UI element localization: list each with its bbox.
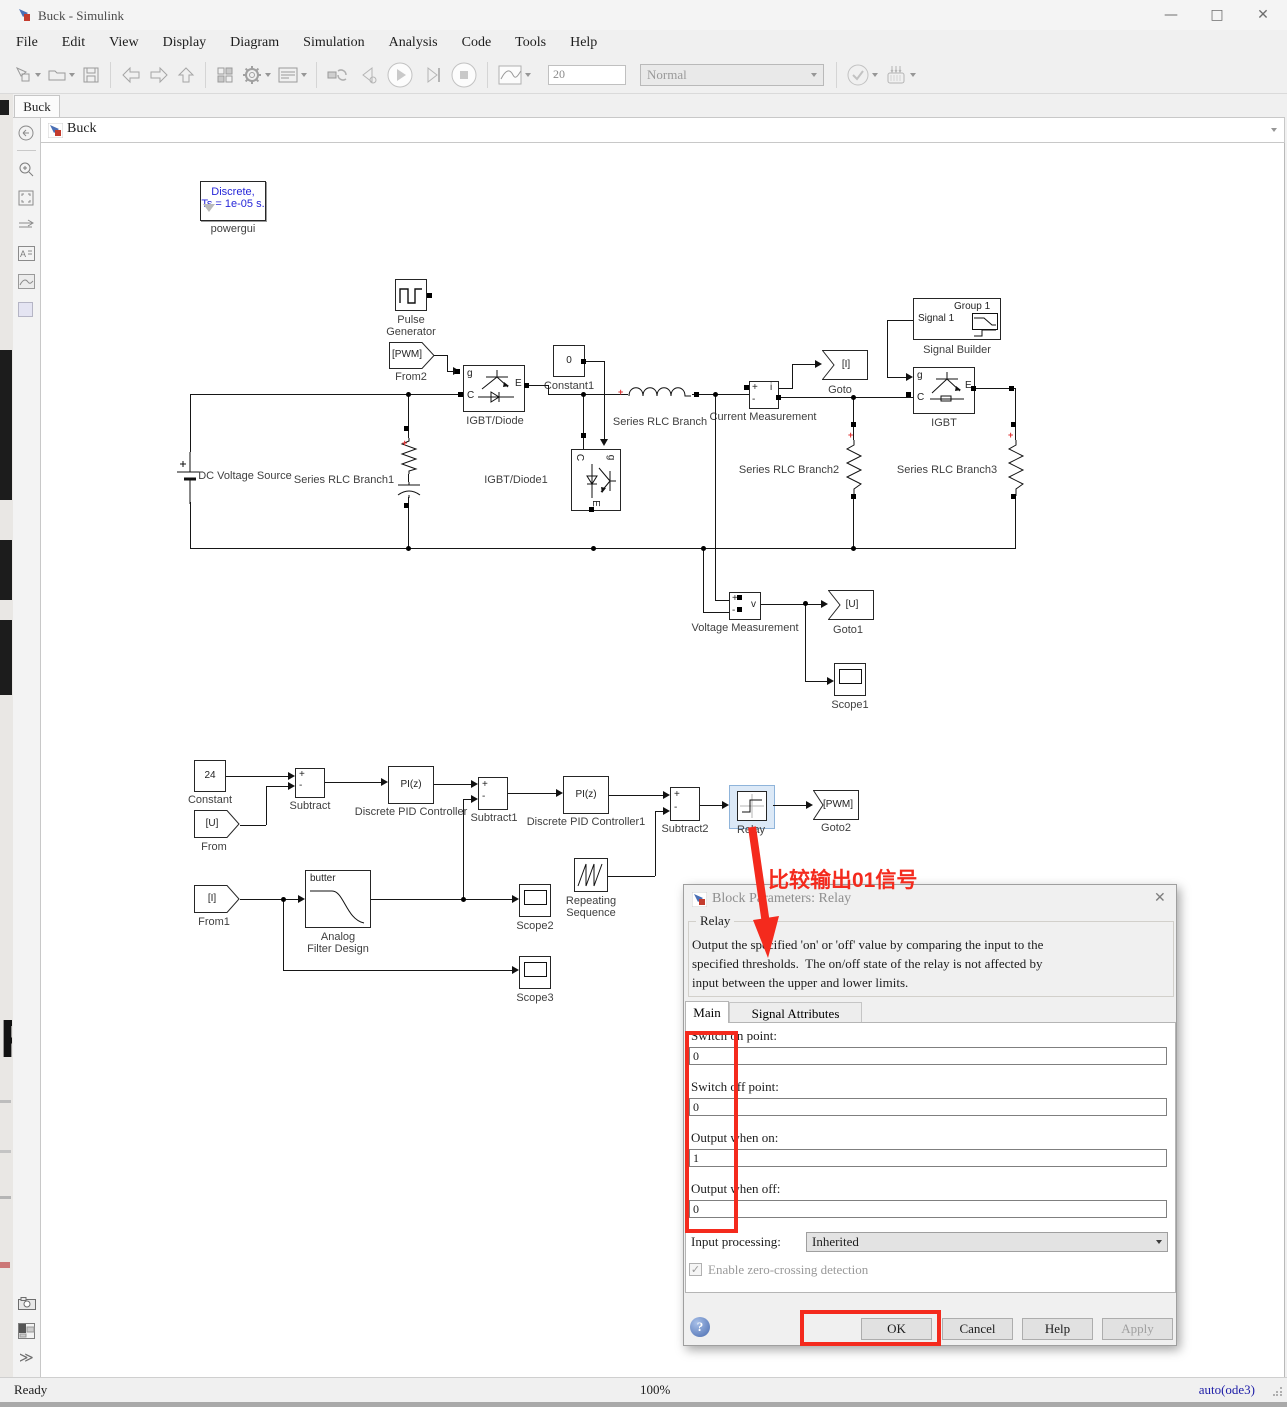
step-forward-button[interactable] (417, 61, 447, 89)
wire-arrow (815, 360, 822, 368)
block-label: Discrete PID Controller (355, 806, 467, 818)
block-signal-builder[interactable]: Signal 1 Group 1 (913, 298, 1001, 340)
wire-arrow (806, 801, 813, 809)
menu-code[interactable]: Code (462, 35, 492, 51)
block-scope2[interactable] (519, 884, 551, 917)
chevron-down-icon[interactable] (301, 73, 307, 77)
block-goto[interactable]: [I] (822, 350, 868, 380)
signal-routing-icon[interactable] (18, 219, 35, 236)
switch-off-input[interactable] (689, 1098, 1167, 1116)
port (776, 395, 781, 400)
port (458, 392, 463, 397)
simulink-logo-icon (48, 123, 63, 138)
port (427, 293, 432, 298)
block-analog-filter[interactable]: butter (305, 870, 371, 928)
block-label: Series RLC Branch1 (294, 474, 394, 486)
wire (548, 385, 549, 394)
wire-arrow (288, 782, 295, 790)
block-label: Constant1 (544, 380, 594, 392)
wire-arrow (298, 895, 305, 903)
tab-main[interactable]: Main (685, 1001, 729, 1023)
block-voltage-measurement[interactable]: + v - (729, 592, 761, 620)
wire (609, 795, 663, 796)
open-folder-icon (47, 65, 67, 85)
zero-crossing-checkbox[interactable]: ✓ (689, 1263, 702, 1276)
background-fragment (0, 1196, 11, 1199)
polarity-plus: + (848, 430, 853, 440)
simulation-mode-dropdown[interactable]: Normal (640, 64, 824, 86)
toolbar-separator (205, 62, 206, 88)
menu-diagram[interactable]: Diagram (230, 35, 279, 51)
block-label: Sequence (566, 907, 616, 919)
wire (1015, 388, 1016, 440)
block-label: Generator (386, 326, 436, 338)
port (1009, 386, 1014, 391)
wire (1015, 496, 1016, 548)
wire (190, 502, 191, 548)
menu-bar: File Edit View Display Diagram Simulatio… (0, 30, 1287, 56)
block-discrete-pid1[interactable]: PI(z) (563, 776, 609, 814)
block-from1[interactable]: [I] (194, 885, 240, 913)
block-label: Signal Builder (923, 344, 991, 356)
menu-file[interactable]: File (16, 35, 38, 51)
menu-edit[interactable]: Edit (62, 35, 85, 51)
window-title: Buck - Simulink (38, 8, 124, 24)
pin-label: v (751, 599, 756, 610)
block-label: Scope2 (516, 920, 553, 932)
step-forward-icon (420, 64, 444, 86)
wire-arrow (471, 780, 478, 788)
block-label: Filter Design (307, 943, 369, 955)
stop-button[interactable] (447, 61, 481, 89)
junction-dot (406, 392, 411, 397)
cancel-button[interactable]: Cancel (942, 1318, 1013, 1340)
screenshot-icon[interactable] (18, 1297, 35, 1314)
block-pulse-generator[interactable] (395, 279, 427, 311)
pid1-text: PI(z) (564, 789, 608, 800)
chevron-down-icon[interactable] (525, 73, 531, 77)
build-icon (884, 63, 908, 87)
block-label: Scope1 (831, 699, 868, 711)
block-label: IGBT/Diode (466, 415, 523, 427)
close-icon[interactable]: ✕ (1254, 6, 1272, 24)
wire (887, 320, 913, 321)
block-label: DC Voltage Source (198, 470, 292, 482)
config-list-icon (277, 65, 299, 85)
input-processing-dropdown[interactable]: Inherited (806, 1232, 1168, 1252)
chevron-down-icon (1156, 1240, 1162, 1244)
build-button[interactable] (881, 61, 919, 89)
block-label: Goto2 (821, 822, 851, 834)
up-arrow-icon (176, 65, 196, 85)
powergui-badge-icon (203, 204, 215, 218)
annotation-icon[interactable]: A (18, 246, 35, 263)
port (906, 392, 911, 397)
wire-arrow (381, 778, 388, 786)
pin-label: - (299, 780, 302, 791)
pin-label: g (917, 370, 923, 381)
pin-label: - (482, 791, 485, 802)
library-browser-button[interactable] (212, 61, 238, 89)
wire (761, 604, 821, 605)
filter-curve-icon (308, 885, 368, 925)
block-label: Scope3 (516, 992, 553, 1004)
back-button[interactable] (117, 61, 145, 89)
pid-text: PI(z) (389, 779, 433, 790)
block-label: Series RLC Branch (613, 416, 707, 428)
image-icon[interactable] (18, 274, 35, 291)
breadcrumb-dropdown-icon[interactable] (1271, 128, 1277, 132)
data-inspector-icon (497, 63, 523, 87)
wire (226, 776, 288, 777)
chevron-down-icon[interactable] (35, 73, 41, 77)
input-processing-label: Input processing: (691, 1234, 781, 1250)
wire (887, 377, 906, 378)
wire (779, 397, 913, 398)
block-scope1[interactable] (834, 663, 866, 696)
pin-label: + (752, 382, 758, 393)
scope-screen-icon (524, 890, 547, 905)
port (737, 595, 742, 600)
junction-dot (461, 897, 466, 902)
step-back-button[interactable] (353, 61, 383, 89)
goto2-tag: [PWM] (819, 799, 857, 810)
wire (190, 394, 191, 452)
zoom-tool-icon[interactable] (18, 161, 35, 178)
wire (655, 811, 656, 876)
wire (408, 474, 409, 482)
annotation-text: 比较输出01信号 (768, 864, 917, 894)
data-inspector-button[interactable] (494, 61, 534, 89)
pin-label: + (299, 769, 305, 780)
wire (779, 388, 793, 389)
run-icon (386, 61, 414, 89)
background-fragment (0, 1150, 11, 1153)
output-off-input[interactable] (689, 1200, 1167, 1218)
junction-dot (581, 392, 586, 397)
status-zoom: 100% (640, 1382, 670, 1398)
wire-arrow (663, 807, 670, 815)
sawtooth-icon (575, 859, 607, 891)
wire (700, 805, 722, 806)
block-label: Goto (828, 384, 852, 396)
scope-screen-icon (524, 962, 547, 977)
from2-tag: [PWM] (389, 349, 425, 360)
forward-arrow-icon (148, 65, 170, 85)
wire (266, 786, 267, 825)
port (581, 359, 586, 364)
window-bottom-edge (0, 1402, 1287, 1407)
junction-dot (803, 601, 808, 606)
background-fragment (0, 1100, 11, 1103)
pin-label: + (674, 789, 680, 800)
wire (463, 799, 471, 800)
apply-button[interactable]: Apply (1102, 1318, 1173, 1340)
chevron-down-icon[interactable] (910, 73, 916, 77)
port (589, 507, 594, 512)
save-button[interactable] (78, 61, 104, 89)
pin-label: - (752, 394, 755, 405)
wire-arrow (512, 966, 519, 974)
wire (703, 548, 704, 612)
background-window-strip (0, 94, 13, 1377)
block-label: powergui (211, 223, 256, 235)
polarity-plus: + (1008, 430, 1013, 440)
block-label: Subtract1 (470, 812, 517, 824)
junction-dot (851, 395, 856, 400)
menu-simulation[interactable]: Simulation (303, 35, 364, 51)
block-current-measurement[interactable]: + i - (749, 381, 779, 409)
block-label: Subtract (290, 800, 331, 812)
wire (692, 394, 749, 395)
wire (805, 604, 806, 681)
wire (655, 811, 663, 812)
simulation-mode-value: Normal (647, 67, 687, 83)
junction-dot (701, 546, 706, 551)
wire (548, 394, 628, 395)
wire (792, 364, 793, 388)
block-series-rlc-branch2[interactable] (845, 440, 863, 496)
block-subtract1[interactable]: + - (478, 777, 508, 810)
menu-analysis[interactable]: Analysis (389, 35, 438, 51)
stop-icon (450, 61, 478, 89)
update-diagram-icon (326, 65, 350, 85)
run-button[interactable] (383, 61, 417, 89)
wire-arrow (906, 373, 913, 381)
block-label: Analog (321, 931, 355, 943)
signal-builder-icon (972, 313, 998, 337)
update-diagram-button[interactable] (323, 61, 353, 89)
color-swatch-icon[interactable] (18, 302, 35, 319)
menu-tools[interactable]: Tools (515, 35, 546, 51)
tab-buck[interactable]: Buck (14, 95, 60, 118)
toolbar-separator (316, 62, 317, 88)
block-label: Current Measurement (710, 411, 817, 423)
junction-dot (713, 392, 718, 397)
simulink-logo-icon (18, 8, 32, 22)
wire (240, 899, 298, 900)
wire (447, 355, 448, 371)
wire (792, 364, 815, 365)
block-scope3[interactable] (519, 956, 551, 989)
model-config-button[interactable] (274, 61, 310, 89)
port (404, 426, 409, 431)
save-icon (81, 65, 101, 85)
port (744, 385, 749, 390)
block-label: Discrete PID Controller1 (527, 816, 646, 828)
wire-arrow (821, 600, 828, 608)
wire (266, 786, 288, 787)
block-series-rlc-branch1-capacitor[interactable] (396, 482, 422, 498)
breadcrumb-bar: Buck (40, 117, 1285, 143)
port (1011, 422, 1016, 427)
powergui-text: Discrete, (211, 186, 254, 198)
port (581, 433, 586, 438)
wire (408, 394, 409, 438)
new-model-button[interactable] (10, 61, 44, 89)
wire-arrow (600, 439, 608, 446)
wire (190, 548, 1016, 549)
block-from2[interactable]: [PWM] (389, 342, 435, 369)
groupbox-label: Relay (696, 913, 734, 929)
pin-label: - (732, 605, 735, 616)
expand-palette-icon[interactable]: ≫ (19, 1350, 34, 1366)
menu-view[interactable]: View (109, 35, 138, 51)
block-label: Series RLC Branch3 (897, 464, 997, 476)
igbt-icon (924, 371, 968, 411)
chevron-down-icon[interactable] (69, 73, 75, 77)
wire-arrow (663, 791, 670, 799)
chevron-down-icon (811, 73, 817, 77)
maximize-icon[interactable]: □ (1208, 6, 1226, 24)
igbt-diode-icon (576, 460, 618, 502)
wire (703, 612, 729, 613)
block-repeating-sequence[interactable] (574, 858, 608, 892)
block-series-rlc-branch3[interactable] (1007, 440, 1025, 496)
toolbar-separator (836, 62, 837, 88)
wire (463, 799, 464, 899)
block-label: Series RLC Branch2 (739, 464, 839, 476)
port (455, 369, 460, 374)
hide-browser-icon[interactable] (18, 125, 35, 142)
port (851, 422, 856, 427)
library-browser-icon (215, 65, 235, 85)
forward-button[interactable] (145, 61, 173, 89)
port (737, 607, 742, 612)
junction-dot (281, 897, 286, 902)
constant-value: 24 (195, 770, 225, 781)
wire (853, 496, 854, 548)
gear-icon (241, 64, 263, 86)
block-label: Voltage Measurement (691, 622, 798, 634)
igbt-diode-icon (474, 369, 518, 409)
port (851, 494, 856, 499)
wire (583, 394, 584, 449)
block-igbt[interactable]: g C E (913, 367, 975, 414)
wire (325, 782, 381, 783)
model-advisor-button[interactable] (843, 61, 881, 89)
scope-screen-icon (839, 669, 862, 684)
new-model-icon (13, 65, 33, 85)
toolbar-separator (110, 62, 111, 88)
model-settings-button[interactable] (238, 61, 274, 89)
wire-arrow (471, 795, 478, 803)
wire (585, 361, 604, 362)
chevron-down-icon[interactable] (265, 73, 271, 77)
background-fragment (0, 100, 9, 115)
pin-label: + (482, 779, 488, 790)
polarity-plus: + (402, 438, 407, 448)
tab-signal-attributes[interactable]: Signal Attributes (729, 1002, 862, 1024)
block-label: IGBT/Diode1 (484, 474, 548, 486)
toolbar: Normal (0, 56, 1287, 94)
dialog-close-icon[interactable]: ✕ (1154, 890, 1166, 906)
wire (508, 793, 556, 794)
background-fragment (0, 620, 12, 695)
viewmarks-icon[interactable] (18, 1323, 35, 1340)
breadcrumb[interactable]: Buck (67, 121, 97, 137)
minimize-icon[interactable]: — (1162, 6, 1180, 24)
up-button[interactable] (173, 61, 199, 89)
background-fragment (0, 1262, 10, 1268)
switch-on-input[interactable] (689, 1047, 1167, 1065)
block-label: Repeating (566, 895, 616, 907)
step-back-icon (356, 64, 380, 86)
wire (608, 876, 655, 877)
block-igbt-diode[interactable]: g C E (463, 365, 525, 412)
help-button[interactable]: Help (1022, 1318, 1093, 1340)
wire-arrow (556, 789, 563, 797)
junction-dot (851, 546, 856, 551)
resize-grip-icon[interactable] (1273, 1386, 1283, 1396)
block-constant[interactable]: 24 (194, 760, 226, 792)
block-igbt-diode1[interactable]: C g E (571, 449, 621, 511)
menu-display[interactable]: Display (163, 35, 207, 51)
block-label: From2 (395, 371, 427, 383)
wire-arrow (512, 895, 519, 903)
junction-dot (591, 546, 596, 551)
port (404, 503, 409, 508)
zero-crossing-label: Enable zero-crossing detection (708, 1262, 868, 1278)
check-circle-icon (846, 63, 870, 87)
block-subtract[interactable]: + - (295, 768, 325, 798)
wire (887, 320, 888, 377)
wire (805, 681, 827, 682)
output-on-input[interactable] (689, 1149, 1167, 1167)
port (971, 386, 976, 391)
wire (434, 784, 471, 785)
wire (283, 899, 284, 970)
block-label: From (201, 841, 227, 853)
help-circle-icon[interactable]: ? (690, 1317, 710, 1337)
wire (434, 355, 447, 356)
status-ready: Ready (14, 1382, 47, 1398)
block-relay[interactable] (737, 791, 767, 821)
block-series-rlc-branch[interactable] (628, 383, 692, 401)
block-subtract2[interactable]: + - (670, 787, 700, 821)
block-label: IGBT (931, 417, 957, 429)
stop-time-input[interactable] (548, 65, 626, 85)
block-label: Pulse (397, 314, 425, 326)
pin-label: - (674, 802, 677, 813)
chevron-down-icon[interactable] (872, 73, 878, 77)
block-label: Subtract2 (661, 823, 708, 835)
signal-builder-group: Group 1 (954, 301, 990, 312)
open-button[interactable] (44, 61, 78, 89)
block-discrete-pid[interactable]: PI(z) (388, 766, 434, 804)
fit-to-view-icon[interactable] (18, 190, 35, 207)
signal-builder-signal: Signal 1 (918, 313, 954, 324)
wire (715, 600, 729, 601)
pin-label: g (467, 368, 473, 379)
svg-text:A: A (20, 249, 26, 259)
wire (283, 970, 512, 971)
wire-arrow (288, 772, 295, 780)
block-from[interactable]: [U] (194, 810, 240, 838)
simulink-logo-icon (692, 892, 707, 907)
pin-label: i (770, 382, 772, 393)
sidebar-divider (17, 150, 36, 151)
wire (604, 361, 605, 439)
block-goto2[interactable]: [PWM] (813, 790, 859, 820)
wire (240, 825, 266, 826)
port (1011, 494, 1016, 499)
relay-step-icon (738, 792, 766, 820)
menu-help[interactable]: Help (570, 35, 597, 51)
block-goto1[interactable]: [U] (828, 590, 874, 620)
status-solver[interactable]: auto(ode3) (1199, 1382, 1255, 1398)
block-label: Goto1 (833, 624, 863, 636)
